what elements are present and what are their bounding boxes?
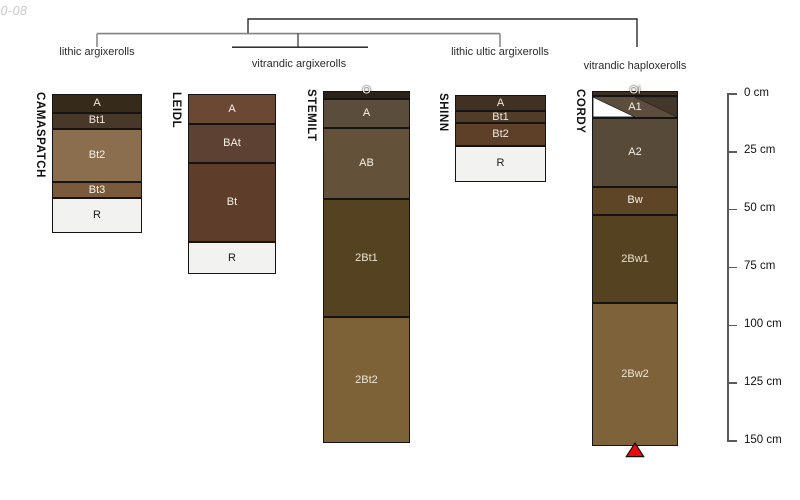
horizon-A: A <box>188 94 276 124</box>
taxon-label: lithic ultic argixerolls <box>451 46 549 58</box>
taxon-label: vitrandic haploxerolls <box>584 60 687 72</box>
horizon-AB: AB <box>323 128 410 200</box>
horizon-label: 2Bw2 <box>621 369 649 380</box>
horizon-label: Bt2 <box>89 150 106 161</box>
profile-name-stemilt: STEMILT <box>302 89 320 142</box>
horizon-2Bt2: 2Bt2 <box>323 317 410 443</box>
profile-column-stemilt: OAAB2Bt12Bt2 <box>323 91 410 444</box>
depth-tick <box>727 209 737 211</box>
profile-name-shinn: SHINN <box>434 93 452 132</box>
profile-name-camaspatch: CAMASPATCH <box>31 92 49 178</box>
horizon-Bt3: Bt3 <box>52 182 142 198</box>
horizon-label: Bt1 <box>492 112 509 123</box>
horizon-label: R <box>497 158 505 169</box>
horizon-2Bt1: 2Bt1 <box>323 199 410 317</box>
depth-tick <box>727 382 737 384</box>
horizon-label: Bt2 <box>492 129 509 140</box>
horizon-label: A2 <box>628 147 641 158</box>
depth-tick <box>727 325 737 327</box>
depth-tick-label: 25 cm <box>744 144 775 156</box>
depth-tick-label: 125 cm <box>744 376 782 388</box>
watermark-date: 10-08 <box>0 4 27 18</box>
horizon-label: Oi <box>630 85 641 96</box>
depth-tick <box>727 440 737 442</box>
depth-tick <box>727 93 737 95</box>
horizon-Bt: Bt <box>188 163 276 242</box>
horizon-label: AB <box>359 158 374 169</box>
taxon-label: lithic argixerolls <box>59 46 134 58</box>
horizon-label: A1 <box>628 102 641 113</box>
horizon-Bt2: Bt2 <box>455 123 546 146</box>
horizon-A2: A2 <box>592 118 678 186</box>
horizon-label: 2Bt2 <box>355 375 378 386</box>
taxon-label: vitrandic argixerolls <box>252 58 346 70</box>
horizon-R: R <box>188 242 276 274</box>
horizon-label: A <box>228 104 235 115</box>
depth-tick <box>727 151 737 153</box>
profile-column-camaspatch: ABt1Bt2Bt3R <box>52 94 142 233</box>
horizon-label: A <box>363 108 370 119</box>
profile-column-cordy: OiA1A2Bw2Bw12Bw2 <box>592 91 678 446</box>
depth-tick-label: 150 cm <box>744 434 782 446</box>
profile-column-leidl: ABAtBtR <box>188 94 276 274</box>
horizon-Bt1: Bt1 <box>52 113 142 129</box>
horizon-label: Bt <box>227 197 237 208</box>
horizon-label: O <box>362 85 371 96</box>
horizon-R: R <box>52 198 142 233</box>
horizon-label: R <box>228 253 236 264</box>
depth-tick-label: 100 cm <box>744 318 782 330</box>
horizon-label: Bt1 <box>89 115 106 126</box>
depth-tick-label: 50 cm <box>744 202 775 214</box>
profile-column-shinn: ABt1Bt2R <box>455 95 546 182</box>
horizon-2Bw2: 2Bw2 <box>592 303 678 445</box>
profile-name-leidl: LEIDL <box>167 92 185 128</box>
depth-tick-label: 0 cm <box>744 87 769 99</box>
horizon-label: A <box>497 98 504 109</box>
horizon-2Bw1: 2Bw1 <box>592 215 678 303</box>
horizon-Bt1: Bt1 <box>455 111 546 123</box>
horizon-R: R <box>455 146 546 182</box>
horizon-A: A <box>323 99 410 128</box>
horizon-label: Bt3 <box>89 185 106 196</box>
horizon-O: O <box>323 91 410 99</box>
horizon-label: 2Bt1 <box>355 253 378 264</box>
horizon-A: A <box>455 95 546 111</box>
profile-name-cordy: CORDY <box>571 89 589 134</box>
horizon-label: R <box>93 210 101 221</box>
horizon-A: A <box>52 94 142 113</box>
horizon-Bw: Bw <box>592 187 678 216</box>
horizon-A1: A1 <box>592 96 678 118</box>
horizon-label: Bw <box>627 195 642 206</box>
horizon-label: 2Bw1 <box>621 254 649 265</box>
horizon-Bt2: Bt2 <box>52 129 142 182</box>
horizon-label: A <box>93 98 100 109</box>
horizon-label: BAt <box>223 138 241 149</box>
depth-tick-label: 75 cm <box>744 260 775 272</box>
depth-tick <box>727 267 737 269</box>
horizon-BAt: BAt <box>188 124 276 163</box>
